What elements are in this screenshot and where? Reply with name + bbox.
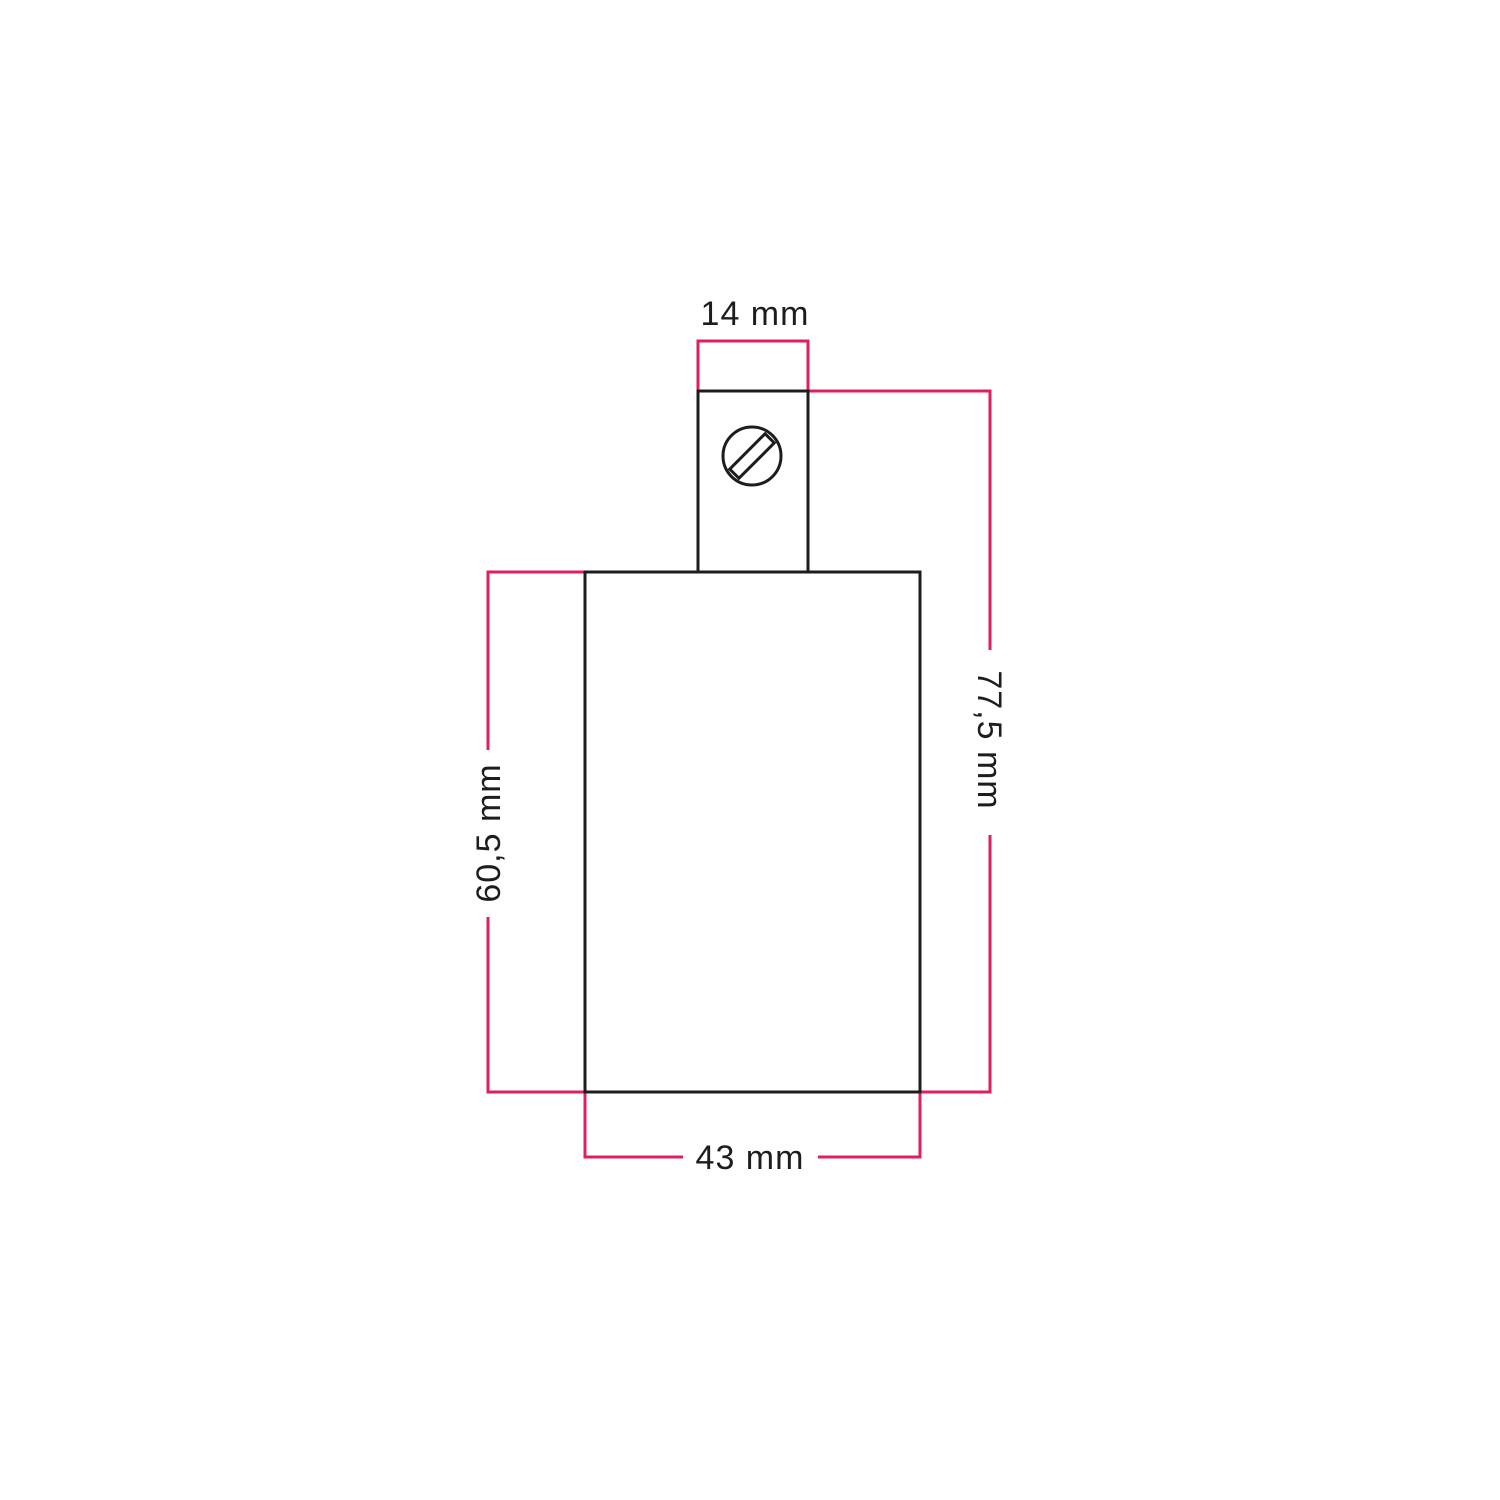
dimension-label-total-height: 77,5 mm: [970, 670, 1008, 809]
dimension-line-total-height-lower: [920, 835, 990, 1092]
dimension-line-body-width-right: [818, 1092, 920, 1157]
dimension-line-top-width: [698, 341, 808, 391]
dimension-diagram: 14 mm 77,5 mm 60,5 mm 43 mm: [0, 0, 1500, 1500]
dimension-label-body-width: 43 mm: [696, 1139, 805, 1177]
dimension-label-body-height: 60,5 mm: [470, 763, 508, 902]
screw-head-icon: [723, 427, 781, 485]
dimension-label-top-width: 14 mm: [701, 295, 810, 333]
drawing-canvas: 14 mm 77,5 mm 60,5 mm 43 mm: [0, 0, 1500, 1500]
dimension-line-body-height-lower: [488, 917, 585, 1092]
dimension-line-body-width-left: [585, 1092, 683, 1157]
dimension-line-body-height-upper: [488, 572, 585, 750]
body-outline: [585, 572, 920, 1092]
